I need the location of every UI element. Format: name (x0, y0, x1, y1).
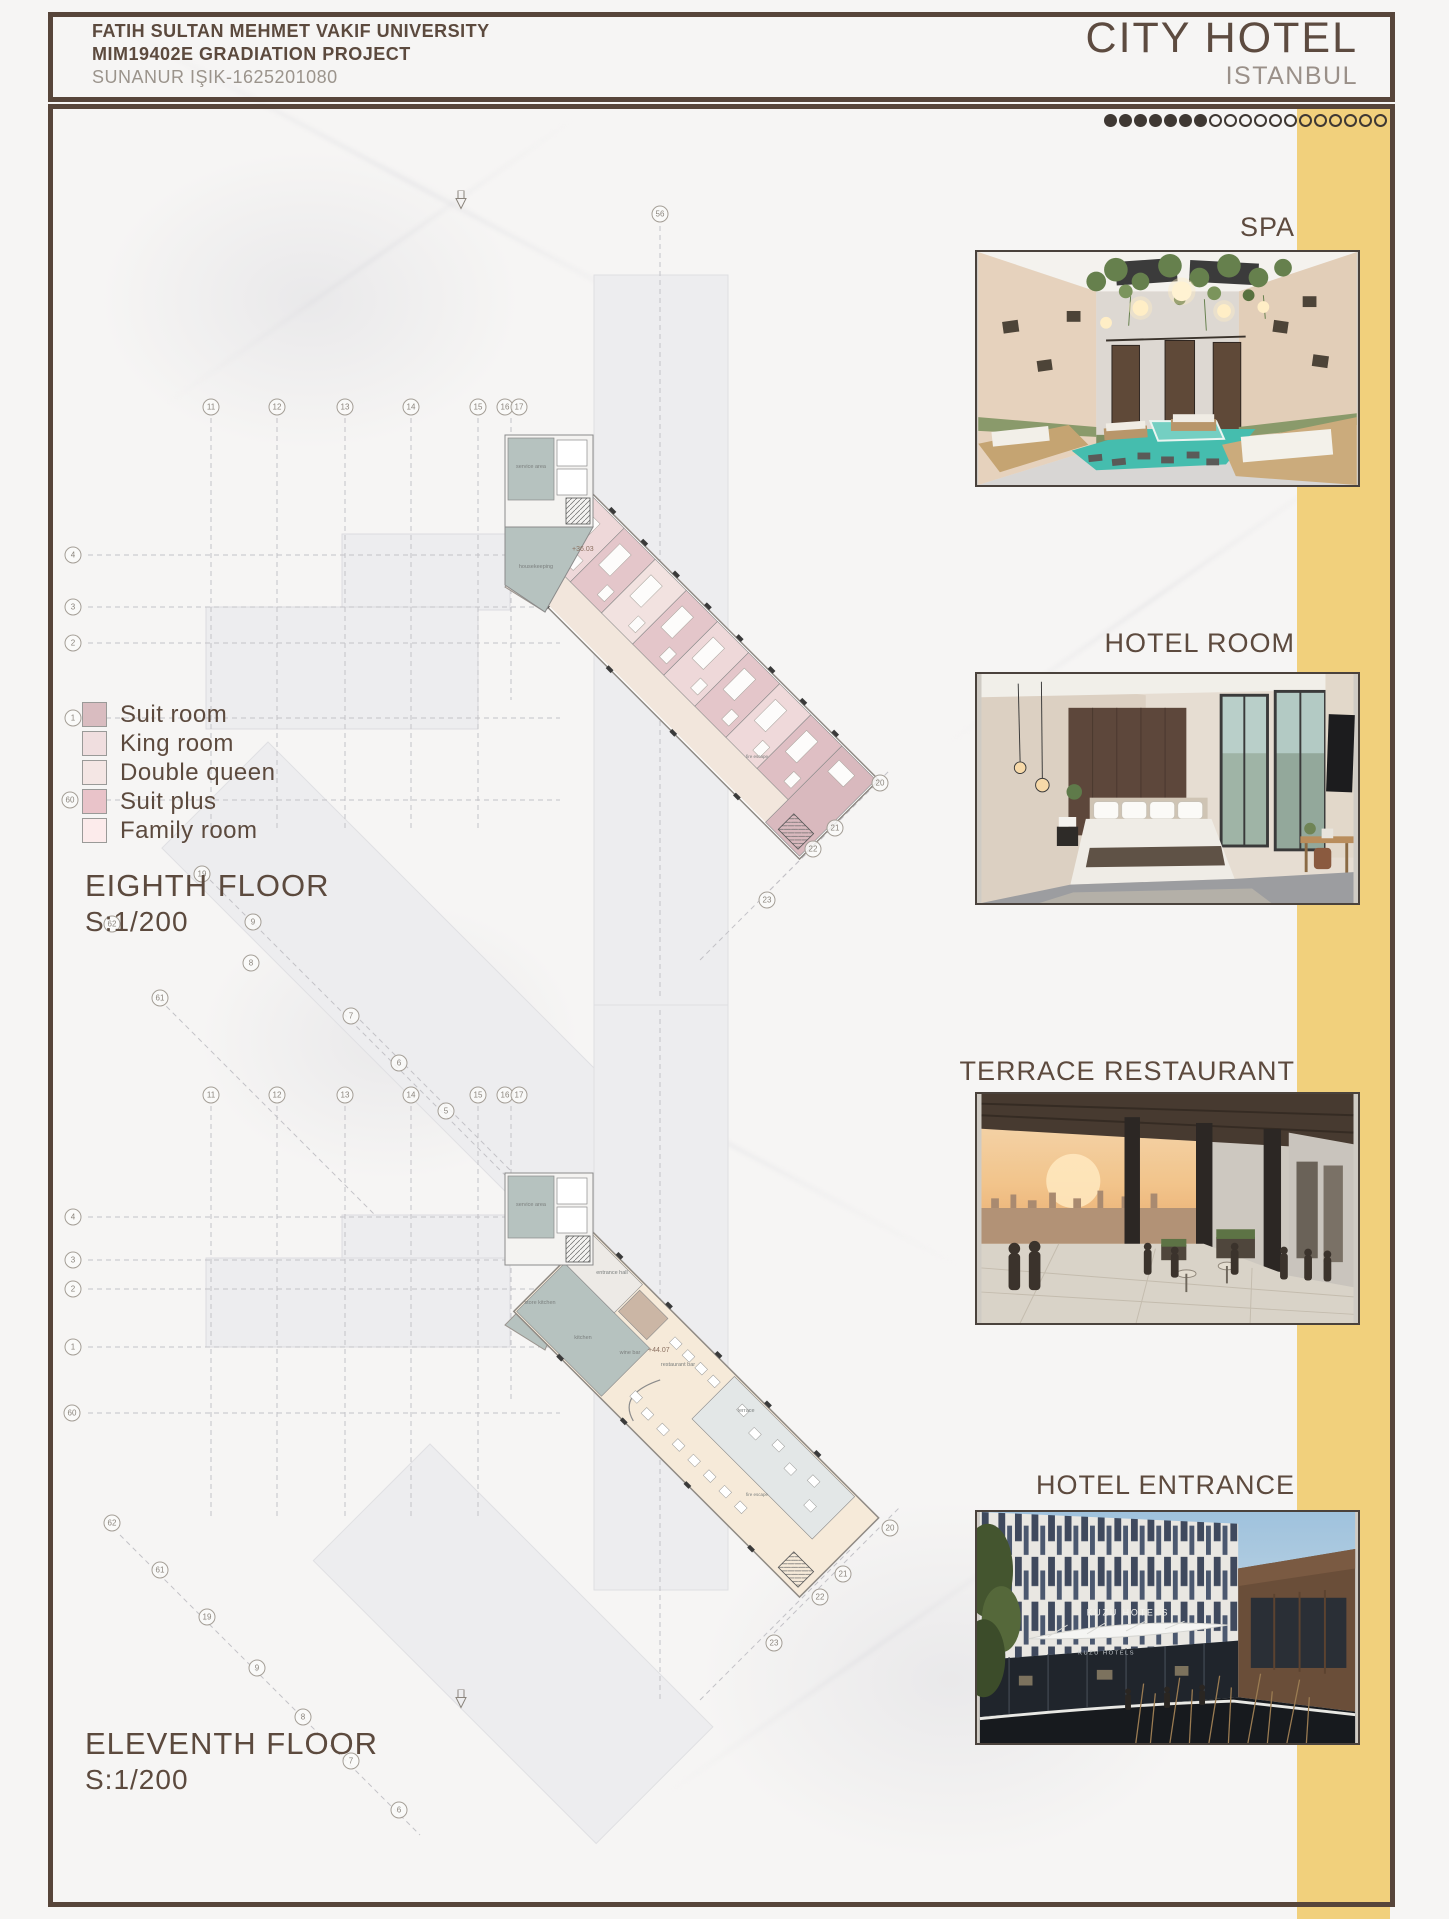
page-title: CITY HOTEL (1086, 14, 1358, 63)
grid-bubble: 9 (245, 914, 262, 931)
progress-dot (1359, 114, 1372, 127)
grid-bubble: 1 (65, 1339, 82, 1356)
plan-label: entrance hall (596, 1270, 628, 1276)
spa-photo (975, 250, 1360, 487)
legend-label: Double queen (120, 759, 275, 787)
grid-bubble: 23 (766, 1635, 783, 1652)
legend-swatch (82, 731, 107, 756)
progress-dot (1224, 114, 1237, 127)
progress-dot (1209, 114, 1222, 127)
grid-bubble: 14 (403, 399, 420, 416)
legend-item: Family room (82, 816, 275, 845)
legend-item: Suit room (82, 700, 275, 729)
grid-bubble: 11 (203, 1087, 220, 1104)
section-label-hotel-room: HOTEL ROOM (1104, 628, 1295, 659)
progress-dot (1179, 114, 1192, 127)
university-name: FATIH SULTAN MEHMET VAKIF UNIVERSITY (92, 21, 490, 42)
grid-bubble: 22 (812, 1589, 829, 1606)
progress-dot (1329, 114, 1342, 127)
section-marker-icon (454, 1690, 468, 1715)
legend-label: Suit plus (120, 788, 217, 816)
progress-dot (1239, 114, 1252, 127)
plan-label: service area (516, 1202, 547, 1208)
grid-bubble: 1 (65, 710, 82, 727)
project-name: MIM19402E GRADIATION PROJECT (92, 44, 411, 65)
grid-bubble: 21 (827, 820, 844, 837)
plan-label: restaurant bar (661, 1362, 695, 1368)
grid-bubble: 12 (269, 399, 286, 416)
progress-dot (1284, 114, 1297, 127)
grid-bubble: 8 (243, 955, 260, 972)
plan-label: fire escape (746, 1492, 769, 1497)
level-mark: +44.07 (648, 1347, 670, 1354)
eleventh-floor-title: ELEVENTH FLOOR (85, 1726, 378, 1762)
eighth-floor-scale: S:1/200 (85, 906, 189, 938)
legend-swatch (82, 760, 107, 785)
legend-swatch (82, 818, 107, 843)
section-label-terrace-restaurant: TERRACE RESTAURANT (959, 1056, 1295, 1087)
progress-dot (1299, 114, 1312, 127)
grid-bubble: 17 (511, 1087, 528, 1104)
legend-label: Suit room (120, 701, 227, 729)
grid-bubble: 23 (759, 892, 776, 909)
progress-dot (1119, 114, 1132, 127)
level-mark: +36.03 (572, 546, 594, 553)
grid-bubble: 56 (652, 206, 669, 223)
grid-bubble: 4 (65, 1209, 82, 1226)
grid-bubble: 11 (203, 399, 220, 416)
terrace-restaurant-photo (975, 1092, 1360, 1325)
grid-bubble: 61 (152, 990, 169, 1007)
plan-label: fire escape (746, 754, 769, 759)
grid-bubble: 4 (65, 547, 82, 564)
progress-dot (1314, 114, 1327, 127)
plan-label: service area (516, 464, 547, 470)
grid-bubble: 60 (62, 792, 79, 809)
legend-swatch (82, 789, 107, 814)
grid-bubble: 12 (269, 1087, 286, 1104)
legend-item: Suit plus (82, 787, 275, 816)
progress-dots (1104, 114, 1387, 127)
section-label-spa: SPA (1240, 212, 1295, 243)
legend-item: Double queen (82, 758, 275, 787)
section-marker-icon (454, 191, 468, 216)
eighth-floor-title: EIGHTH FLOOR (85, 868, 330, 904)
progress-dot (1194, 114, 1207, 127)
grid-bubble: 9 (249, 1660, 266, 1677)
author-id: SUNANUR IŞIK-1625201080 (92, 67, 338, 88)
plan-label: kitchen (574, 1335, 591, 1341)
grid-bubble: 5 (438, 1103, 455, 1120)
grid-bubble: 20 (872, 775, 889, 792)
progress-dot (1269, 114, 1282, 127)
legend-label: King room (120, 730, 234, 758)
progress-dot (1374, 114, 1387, 127)
grid-bubble: 20 (882, 1520, 899, 1537)
grid-bubble: 3 (65, 599, 82, 616)
plan-label: housekeeping (519, 564, 553, 570)
entrance-sign-text: KUZU HOTELS (1078, 1650, 1135, 1656)
room-type-legend: Suit roomKing roomDouble queenSuit plusF… (82, 700, 275, 845)
page-subtitle: ISTANBUL (1226, 62, 1358, 91)
legend-item: King room (82, 729, 275, 758)
grid-bubble: 6 (391, 1802, 408, 1819)
grid-bubble: 2 (65, 635, 82, 652)
grid-bubble: 22 (805, 841, 822, 858)
plan-label: wine bar (619, 1350, 641, 1356)
grid-bubble: 6 (391, 1055, 408, 1072)
grid-bubble: 61 (152, 1562, 169, 1579)
grid-bubble: 15 (470, 1087, 487, 1104)
canopy-sign-text: KUZU HOTELS (1087, 1607, 1170, 1617)
progress-dot (1164, 114, 1177, 127)
eleventh-floor-scale: S:1/200 (85, 1764, 189, 1796)
legend-label: Family room (120, 817, 258, 845)
grid-bubble: 8 (295, 1709, 312, 1726)
grid-bubble: 15 (470, 399, 487, 416)
grid-bubble: 17 (511, 399, 528, 416)
presentation-board: service area housekeeping +36.03 fire es… (0, 0, 1449, 1919)
grid-bubble: 13 (337, 399, 354, 416)
progress-dot (1134, 114, 1147, 127)
plan-label: store kitchen (524, 1300, 555, 1306)
progress-dot (1344, 114, 1357, 127)
progress-dot (1149, 114, 1162, 127)
section-label-hotel-entrance: HOTEL ENTRANCE (1036, 1470, 1295, 1501)
hotel-entrance-photo: KUZU HOTELS KUZU HOTELS (975, 1510, 1360, 1745)
grid-bubble: 21 (835, 1566, 852, 1583)
progress-dot (1254, 114, 1267, 127)
grid-bubble: 19 (199, 1609, 216, 1626)
grid-bubble: 14 (403, 1087, 420, 1104)
plan-label: terrace (737, 1408, 754, 1414)
grid-bubble: 2 (65, 1281, 82, 1298)
progress-dot (1104, 114, 1117, 127)
grid-bubble: 7 (343, 1008, 360, 1025)
grid-bubble: 62 (104, 1515, 121, 1532)
grid-bubble: 13 (337, 1087, 354, 1104)
grid-bubble: 3 (65, 1252, 82, 1269)
grid-bubble: 60 (64, 1405, 81, 1422)
legend-swatch (82, 702, 107, 727)
hotel-room-photo (975, 672, 1360, 905)
